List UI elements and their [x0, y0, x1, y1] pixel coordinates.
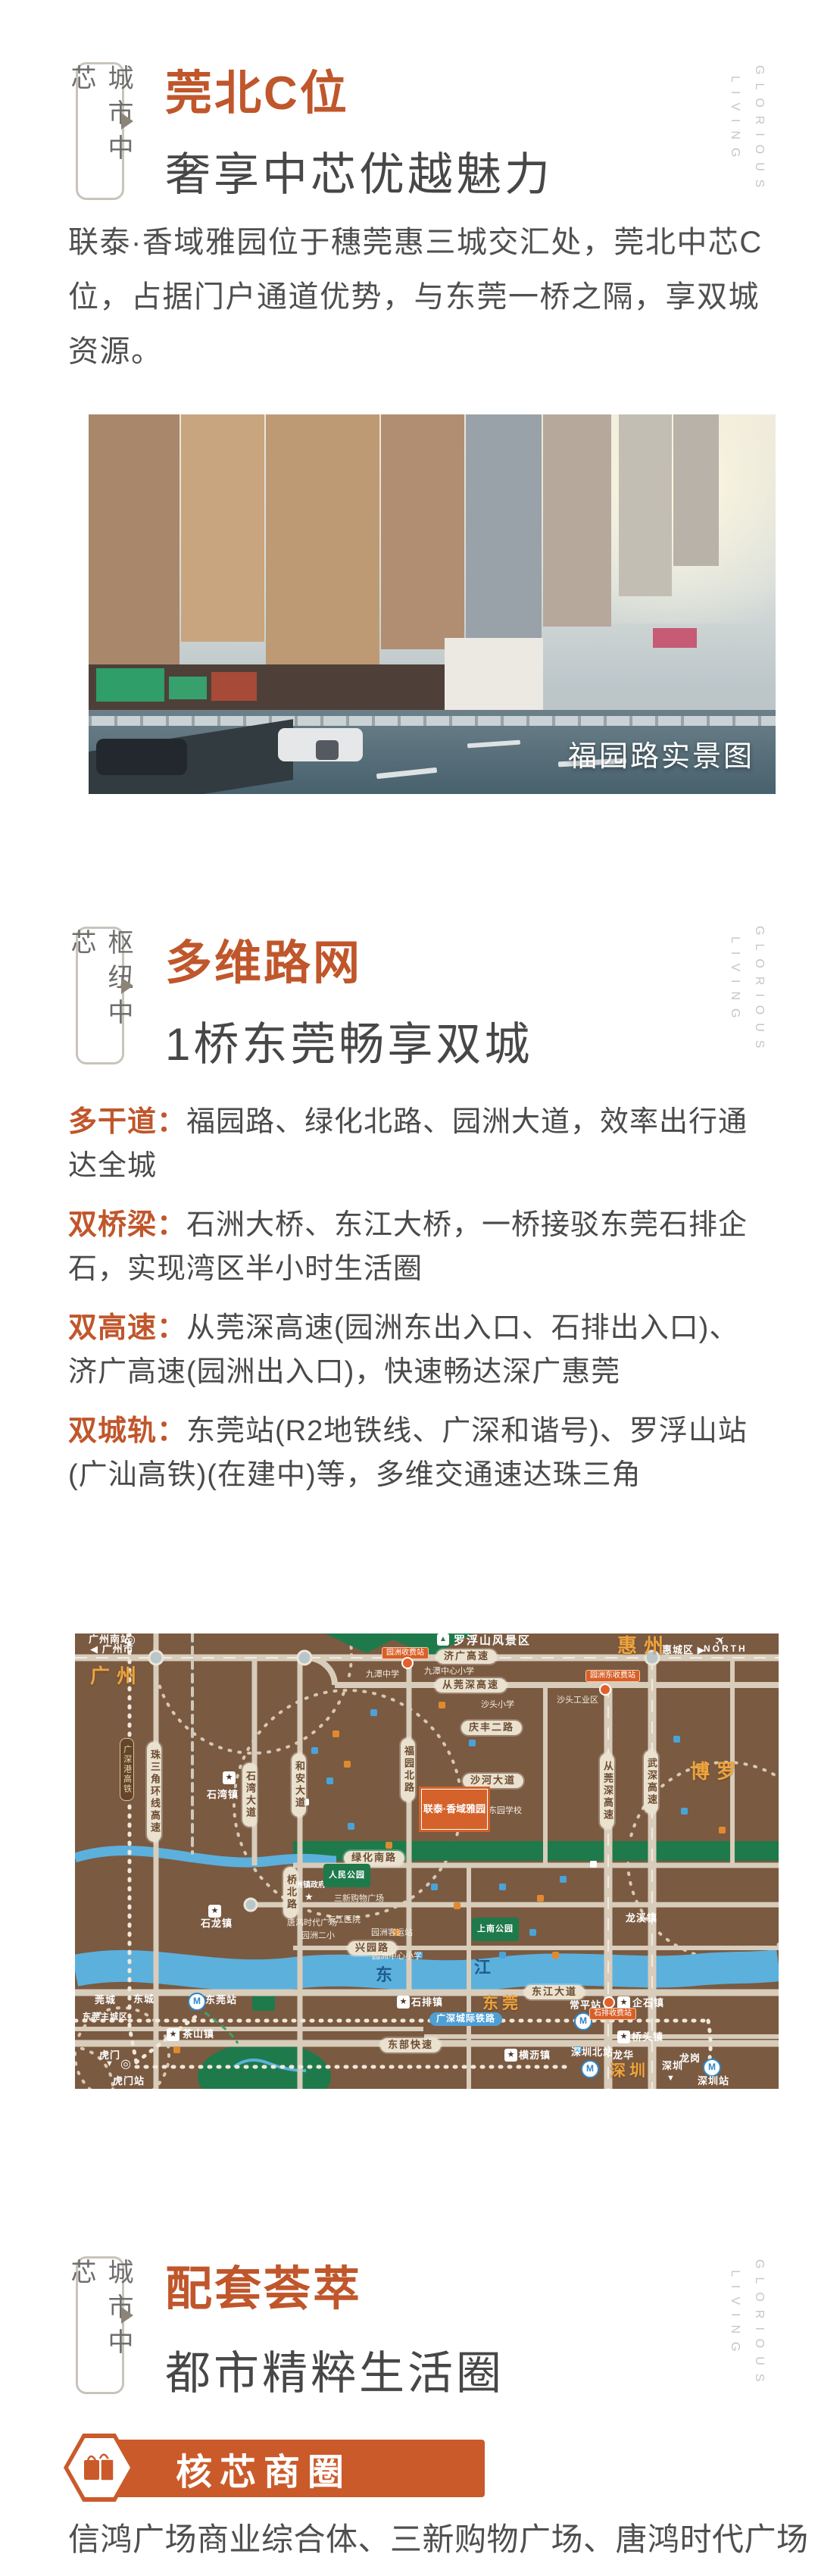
feature-label: 多干道：: [68, 1106, 186, 1138]
photo-tower-decor: [181, 414, 264, 642]
map-humen-station: 虎门站: [113, 2076, 145, 2087]
town-star-icon: ★: [617, 2030, 630, 2043]
core-business-badge: 核芯商圈: [97, 2440, 485, 2497]
toll-dot-icon: [401, 1657, 414, 1669]
map-dongguan-station: 东莞站: [205, 1995, 237, 2006]
poi-dongyuan-school: 东园学校: [489, 1806, 522, 1816]
road-dongjiang-avenue: 东江大道: [524, 1985, 585, 1999]
photo-tower-decor: [543, 414, 611, 627]
road-shahe-avenue: 沙河大道: [463, 1774, 523, 1788]
section2-title: 多维路网: [165, 924, 362, 993]
road-congguanshen-expressway: 从莞深高速: [435, 1678, 507, 1693]
map-town-shilong: 石龙镇: [201, 1918, 233, 1930]
map-shenzhen-arrow: ▼: [667, 2074, 676, 2084]
river-label-jiang: 江: [474, 1958, 491, 1977]
map-roads-decor: [75, 1633, 779, 2089]
toll-dot-icon: [603, 1996, 615, 2009]
road-shiwan-avenue: 石湾大道: [242, 1763, 257, 1827]
tab-arrow-icon: [121, 977, 133, 994]
town-star-icon: ★: [304, 1892, 314, 1903]
metro-station-icon: M: [703, 2059, 721, 2077]
map-city-shenzhen: 深圳: [610, 2062, 649, 2080]
tab-arrow-icon: [121, 2307, 133, 2324]
toll-shipai: 石排收费站: [589, 2008, 636, 2020]
road-eastern-express: 东部快速: [380, 2038, 441, 2052]
feature-label: 双城轨：: [68, 1415, 186, 1447]
poi-yuanzhou-2nd-primary: 园洲二小: [301, 1931, 335, 1941]
section3-paragraph: 信鸿广场商业综合体、三新购物广场、唐鸿时代广场: [68, 2514, 818, 2560]
watermark-line1: GLORIOUS: [747, 2259, 771, 2390]
photo-caption: 福园路实景图: [568, 733, 754, 774]
section1-tab: 城市中芯: [76, 62, 124, 200]
map-city-boluo: 博罗: [690, 1761, 743, 1784]
section1-paragraph: 联泰·香域雅园位于穗莞惠三城交汇处，莞北中芯C位，占据门户通道优势，与东莞一桥之…: [68, 215, 765, 379]
river-label-dong: 东: [376, 1965, 392, 1984]
map-luofushan-scenic: 罗浮山风景区: [454, 1634, 531, 1647]
photo-white-building-decor: [445, 638, 543, 710]
photo-scooter-decor: [316, 740, 339, 760]
toll-yuanzhou-east: 园洲东收费站: [585, 1670, 640, 1682]
map-city-dongguan: 东莞: [482, 1995, 522, 2013]
map-huicheng-arrow: 惠城区 ▶: [662, 1645, 706, 1656]
photo-tower-decor: [266, 414, 379, 676]
map-shenzhenbei-station: 深圳北站: [571, 2047, 613, 2059]
map-guancheng: 莞城: [95, 1995, 116, 2006]
photo-red-sign-decor: [211, 672, 257, 701]
map-town-hengli: 横沥镇: [519, 2050, 551, 2062]
badge-label: 核芯商圈: [176, 2442, 351, 2495]
section3-title: 配套荟萃: [165, 2250, 362, 2318]
section1-tab-label: 城市中芯: [63, 64, 137, 198]
station-ring-icon: ◎: [120, 2058, 131, 2071]
metro-station-icon: M: [188, 1993, 206, 2011]
shopping-bags-icon: [82, 2451, 117, 2484]
town-star-icon: ★: [167, 2028, 180, 2041]
watermark-line2: LIVING: [723, 936, 747, 1056]
hexagon-badge: [64, 2434, 135, 2502]
photo-green-sign-decor: [96, 668, 164, 702]
section1-title: 莞北C位: [165, 55, 349, 123]
watermark-line1: GLORIOUS: [747, 926, 771, 1056]
map-town-qishi: 企石镇: [632, 1998, 664, 2009]
compass-north-label: NORTH: [704, 1644, 748, 1655]
metro-station-icon: M: [581, 2060, 599, 2078]
toll-dot-icon: [599, 1683, 611, 1696]
town-star-icon: ★: [208, 1905, 221, 1918]
section2-tab: 枢纽中芯: [76, 927, 124, 1064]
map-town-longxi: 龙溪镇: [626, 1913, 657, 1924]
map-guangzhou-city-arrow: ◀ 广州市: [90, 1644, 134, 1655]
road-qingfeng-2nd: 庆丰二路: [461, 1721, 522, 1735]
road-qiaobei: 桥北路: [283, 1867, 298, 1918]
town-star-icon: ★: [223, 1771, 236, 1784]
feature-bridges: 双桥梁：石洲大桥、东江大桥，一桥接驳东莞石排企石，实现湾区半小时生活圈: [68, 1203, 765, 1291]
feature-label: 双桥梁：: [68, 1209, 186, 1241]
section3-tab: 城市中芯: [76, 2256, 124, 2394]
watermark-line1: GLORIOUS: [747, 65, 771, 195]
feature-list: 多干道：福园路、绿化北路、园洲大道，效率出行通达全城 双桥梁：石洲大桥、东江大桥…: [68, 1100, 765, 1512]
section3-subtitle: 都市精粹生活圈: [165, 2337, 504, 2402]
photo-guardrail-decor: [89, 716, 776, 726]
brand-watermark: GLORIOUS LIVING: [723, 2259, 771, 2390]
brand-watermark: GLORIOUS LIVING: [723, 65, 771, 195]
poi-sanxin-mall: 三新购物广场: [334, 1894, 384, 1904]
poi-shatou-industrial: 沙头工业区: [557, 1696, 598, 1705]
poi-shatou-primary: 沙头小学: [481, 1700, 514, 1710]
photo-tower-decor: [381, 414, 464, 649]
mountain-icon: ▲: [437, 1633, 449, 1646]
section3-tab-label: 城市中芯: [63, 2259, 137, 2392]
map-longhua: 龙华: [613, 2050, 634, 2062]
feature-label: 双高速：: [68, 1312, 186, 1344]
road-congguanshen-expressway-s: 从莞深高速: [600, 1753, 614, 1829]
town-star-icon: ★: [397, 1996, 410, 2009]
photo-green-sign-decor: [169, 677, 207, 699]
location-map: 广州惠州博罗东莞深圳广州南站◎◀ 广州市惠城区 ▶✈NORTH▲罗浮山风景区龙溪…: [75, 1633, 779, 2089]
rail-guangshengang-hsr: 广深港高铁: [120, 1738, 134, 1801]
map-dongguan-downtown: 东莞主城区: [83, 2012, 128, 2022]
poi-dongjiang-hospital: 东江医院: [327, 1915, 361, 1925]
road-hean-avenue: 和安大道: [292, 1753, 306, 1817]
map-shenzhen-small: 深圳: [662, 2061, 683, 2072]
photo-far-tower-decor: [619, 414, 672, 596]
map-town-qiaotou: 桥头镇: [632, 2032, 663, 2043]
section1-subtitle: 奢享中芯优越魅力: [165, 138, 553, 204]
section2-tab-label: 枢纽中芯: [63, 929, 137, 1062]
feature-roads: 多干道：福园路、绿化北路、园洲大道，效率出行通达全城: [68, 1100, 765, 1188]
map-project-logo: 联泰·香域雅园: [421, 1789, 488, 1830]
page: 城市中芯 莞北C位 奢享中芯优越魅力 GLORIOUS LIVING 联泰·香域…: [0, 0, 818, 2576]
map-town-chashan: 茶山镇: [183, 2029, 214, 2040]
watermark-line2: LIVING: [723, 76, 747, 195]
map-peoples-park: 人民公园: [323, 1864, 370, 1887]
road-jiguang-expressway: 济广高速: [436, 1649, 497, 1664]
road-prd-ring-expressway: 珠三角环线高速: [147, 1742, 161, 1842]
poi-jiutan-primary: 九潭中心小学: [424, 1667, 474, 1677]
tab-arrow-icon: [121, 113, 133, 130]
map-dongcheng: 东城: [133, 1994, 155, 2005]
map-town-shiwan: 石湾镇: [207, 1790, 239, 1801]
brand-watermark: GLORIOUS LIVING: [723, 926, 771, 1056]
poi-yuanzhou-central-primary: 园洲中心小学: [372, 1952, 422, 1962]
road-wushen-expressway: 武深高速: [644, 1750, 658, 1814]
map-city-guangzhou: 广州: [90, 1665, 143, 1688]
map-shangnan-park: 上南公园: [472, 1918, 519, 1941]
photo-billboard-decor: [653, 628, 697, 648]
feature-expressways: 双高速：从莞深高速(园洲东出入口、石排出入口)、济广高速(园洲出入口)，快速畅达…: [68, 1306, 765, 1394]
map-humen-arrow: ▼: [105, 2059, 114, 2069]
road-fuyuan-north: 福园北路: [401, 1738, 415, 1802]
photo-tower-decor: [89, 414, 180, 664]
street-photo: 福园路实景图: [89, 414, 776, 794]
rail-guangshen-intercity: 广深城际铁路: [429, 2012, 502, 2026]
map-shenzhen-station: 深圳站: [698, 2076, 729, 2087]
section2-subtitle: 1桥东莞畅享双城: [165, 1008, 532, 1074]
watermark-line2: LIVING: [723, 2270, 747, 2390]
map-town-shipai: 石排镇: [411, 1997, 443, 2009]
photo-dark-car-decor: [96, 739, 187, 775]
poi-jiutan-middle-school: 九潭中学: [366, 1670, 399, 1680]
poi-yuanzhou-bus-terminal: 园洲客运站: [371, 1928, 413, 1938]
town-star-icon: ★: [504, 2049, 517, 2062]
photo-far-tower-decor: [673, 414, 719, 566]
feature-rails: 双城轨：东莞站(R2地铁线、广深和谐号)、罗浮山站(广汕高铁)(在建中)等，多维…: [68, 1409, 765, 1497]
